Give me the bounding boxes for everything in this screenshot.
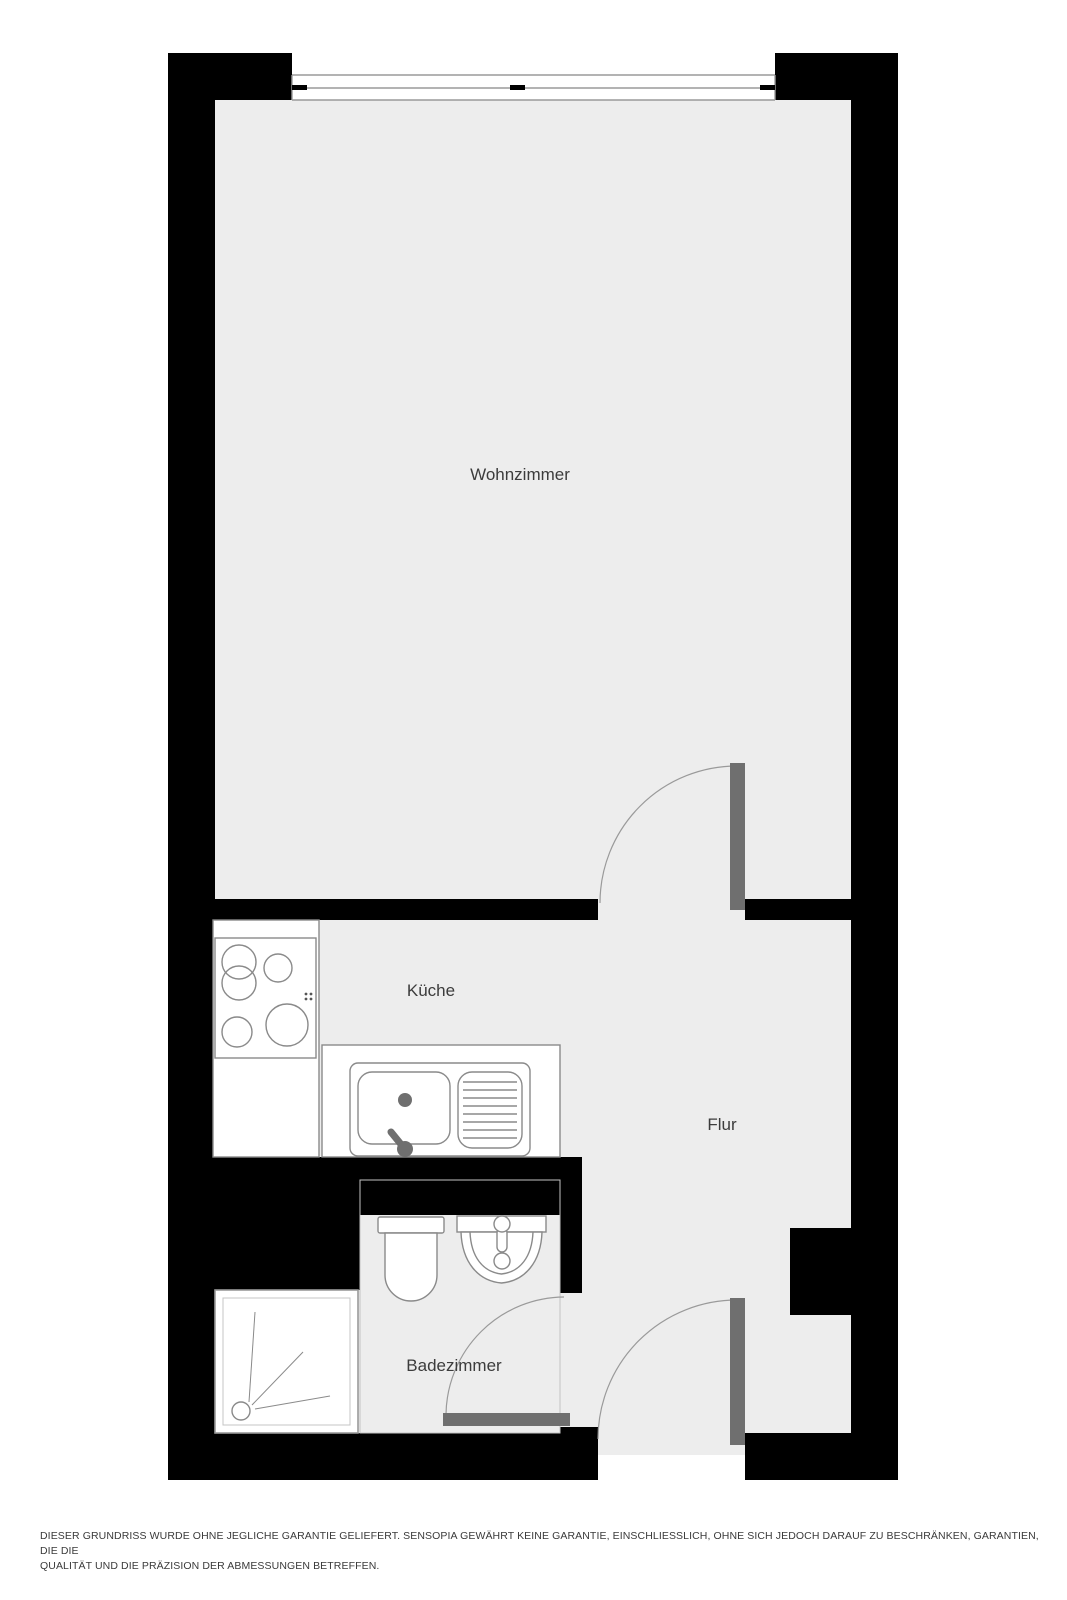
window-tick — [510, 85, 525, 90]
door-leaf — [730, 1298, 745, 1445]
disclaimer-line-2: QUALITÄT UND DIE PRÄZISION DER ABMESSUNG… — [40, 1559, 1040, 1574]
kitchen-sink-icon — [350, 1063, 530, 1157]
wall-segment — [168, 1433, 598, 1480]
wall-segment — [745, 1433, 898, 1480]
shower-icon — [215, 1290, 358, 1433]
window-icon — [292, 75, 775, 100]
disclaimer-line-1: DIESER GRUNDRISS WURDE OHNE JEGLICHE GAR… — [40, 1529, 1040, 1559]
wall-segment — [790, 1228, 851, 1315]
sink-faucet-knob — [397, 1141, 413, 1157]
window-tick — [292, 85, 307, 90]
stove-knob-dot — [305, 993, 308, 996]
disclaimer: DIESER GRUNDRISS WURDE OHNE JEGLICHE GAR… — [40, 1529, 1040, 1574]
room-label-kueche: Küche — [407, 981, 455, 1000]
toilet-bowl — [385, 1233, 437, 1301]
wall-segment — [215, 1180, 360, 1290]
sink-drain — [398, 1093, 412, 1107]
floor-plan-page: Wohnzimmer Küche Flur Badezimmer DIESER … — [0, 0, 1067, 1600]
door-leaf — [443, 1413, 570, 1426]
stove-knob-dot — [310, 998, 313, 1001]
door-leaf — [730, 763, 745, 910]
wall-segment — [560, 1180, 582, 1293]
wall-segment — [215, 1157, 582, 1180]
washbasin-faucet-knob — [494, 1216, 510, 1232]
window-tick — [760, 85, 775, 90]
wall-segment — [851, 53, 898, 1445]
floor-plan-drawing: Wohnzimmer Küche Flur Badezimmer — [0, 0, 1067, 1600]
room-label-flur: Flur — [707, 1115, 737, 1134]
toilet-icon — [378, 1217, 444, 1301]
stove-icon — [215, 938, 316, 1058]
wall-segment — [360, 1180, 560, 1215]
stove-knob-dot — [305, 998, 308, 1001]
room-label-wohnzimmer: Wohnzimmer — [470, 465, 570, 484]
washbasin-drain — [494, 1253, 510, 1269]
wall-segment — [168, 53, 292, 100]
toilet-tank — [378, 1217, 444, 1233]
room-label-badezimmer: Badezimmer — [406, 1356, 502, 1375]
wall-segment — [745, 899, 851, 920]
wall-segment — [168, 53, 215, 1480]
shower-tray — [215, 1290, 358, 1433]
stove-knob-dot — [310, 993, 313, 996]
sink-basin — [358, 1072, 450, 1144]
wall-segment — [215, 899, 598, 920]
sink-drainboard — [458, 1072, 522, 1148]
